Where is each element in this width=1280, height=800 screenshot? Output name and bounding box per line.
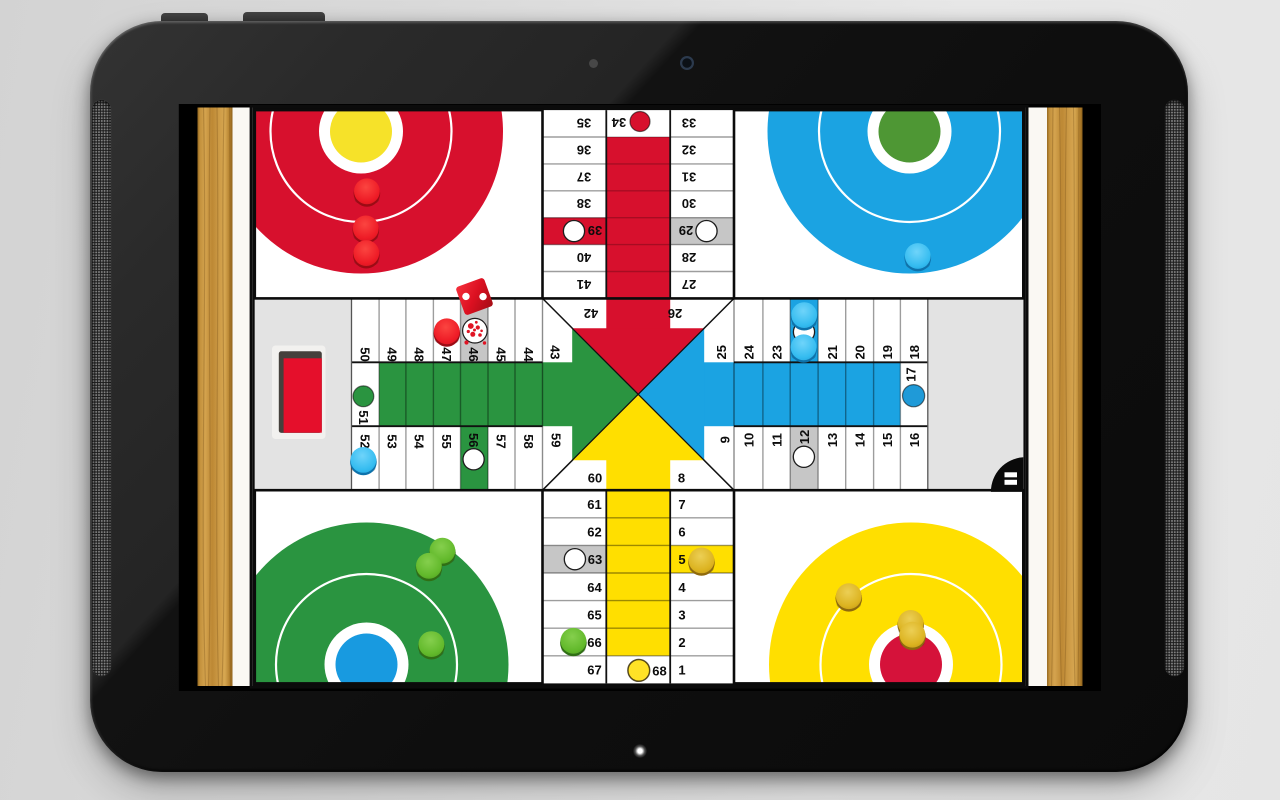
svg-text:32: 32 <box>682 142 696 157</box>
svg-text:12: 12 <box>797 430 812 444</box>
svg-text:45: 45 <box>494 347 509 361</box>
svg-text:58: 58 <box>521 434 536 448</box>
svg-text:50: 50 <box>357 347 372 361</box>
svg-text:44: 44 <box>521 347 536 362</box>
svg-text:48: 48 <box>412 347 427 361</box>
svg-text:5: 5 <box>678 552 685 567</box>
svg-text:30: 30 <box>682 196 696 211</box>
svg-text:61: 61 <box>587 497 601 512</box>
svg-text:47: 47 <box>439 347 454 361</box>
svg-text:38: 38 <box>577 196 591 211</box>
svg-text:20: 20 <box>853 345 868 359</box>
svg-text:56: 56 <box>466 433 481 447</box>
svg-text:16: 16 <box>907 433 922 447</box>
svg-text:26: 26 <box>668 306 682 321</box>
svg-text:2: 2 <box>678 635 685 650</box>
svg-text:19: 19 <box>880 345 895 359</box>
svg-text:51: 51 <box>356 410 371 424</box>
svg-text:13: 13 <box>825 433 840 447</box>
svg-text:64: 64 <box>587 580 602 595</box>
svg-text:21: 21 <box>825 345 840 359</box>
svg-text:6: 6 <box>678 525 685 540</box>
svg-text:15: 15 <box>880 433 895 447</box>
svg-text:3: 3 <box>678 607 685 622</box>
svg-text:17: 17 <box>904 367 919 381</box>
svg-text:57: 57 <box>494 434 509 448</box>
svg-text:39: 39 <box>588 223 602 238</box>
svg-text:37: 37 <box>577 169 591 184</box>
svg-text:8: 8 <box>678 471 685 486</box>
svg-text:35: 35 <box>577 116 591 131</box>
svg-text:66: 66 <box>587 635 601 650</box>
svg-text:18: 18 <box>907 345 922 359</box>
svg-text:42: 42 <box>584 306 598 321</box>
svg-text:53: 53 <box>385 434 400 448</box>
svg-text:23: 23 <box>770 345 785 359</box>
svg-text:46: 46 <box>466 347 481 361</box>
svg-text:40: 40 <box>577 250 591 265</box>
svg-text:68: 68 <box>652 663 666 678</box>
svg-text:9: 9 <box>718 436 733 443</box>
svg-text:33: 33 <box>682 116 696 131</box>
svg-text:4: 4 <box>678 580 686 595</box>
svg-text:49: 49 <box>385 347 400 361</box>
svg-text:7: 7 <box>678 497 685 512</box>
svg-text:52: 52 <box>357 434 372 448</box>
svg-text:34: 34 <box>611 115 626 130</box>
svg-text:28: 28 <box>682 250 696 265</box>
svg-text:41: 41 <box>577 277 591 292</box>
svg-text:54: 54 <box>412 434 427 449</box>
svg-text:65: 65 <box>587 607 601 622</box>
svg-text:25: 25 <box>714 345 729 359</box>
svg-text:27: 27 <box>682 277 696 292</box>
svg-text:29: 29 <box>679 223 693 238</box>
svg-text:62: 62 <box>587 525 601 540</box>
svg-text:60: 60 <box>588 471 602 486</box>
svg-text:31: 31 <box>682 169 696 184</box>
svg-text:43: 43 <box>547 345 562 359</box>
svg-text:55: 55 <box>439 434 454 448</box>
svg-text:11: 11 <box>770 433 785 447</box>
svg-text:59: 59 <box>549 433 564 447</box>
svg-text:1: 1 <box>678 663 685 678</box>
svg-text:36: 36 <box>577 142 591 157</box>
svg-text:24: 24 <box>742 344 757 359</box>
svg-text:63: 63 <box>588 552 602 567</box>
svg-text:10: 10 <box>742 433 757 447</box>
svg-text:14: 14 <box>853 432 868 447</box>
svg-text:67: 67 <box>587 663 601 678</box>
